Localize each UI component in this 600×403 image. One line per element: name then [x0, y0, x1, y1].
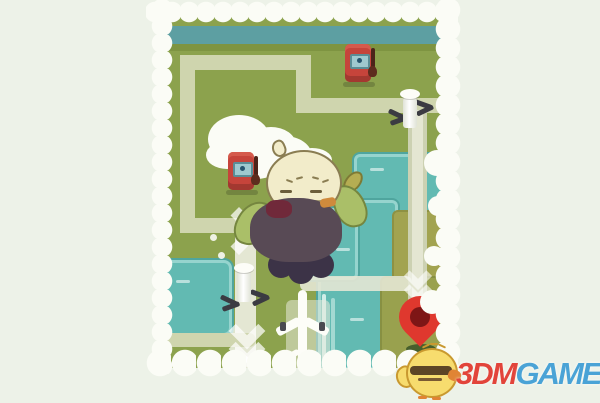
plane-engine	[319, 322, 325, 331]
character-eye	[280, 190, 292, 193]
road-top-horizontal	[180, 55, 311, 70]
pump-shadow	[343, 82, 375, 87]
watermark: 3DMGAME	[396, 340, 600, 402]
wave-mark	[176, 280, 190, 283]
mascot-mouth	[418, 378, 442, 381]
cloud-border-left	[150, 0, 174, 374]
wave-mark	[370, 168, 384, 171]
plane-engine	[280, 322, 286, 331]
mascot-tuft	[438, 343, 446, 348]
cloud-border-puff	[424, 150, 450, 176]
brand-logo: 3DMGAME	[456, 356, 600, 392]
chick-mascot-icon	[396, 342, 462, 402]
game-screenshot: 3DMGAME	[0, 0, 600, 403]
windmill-blade	[222, 301, 241, 312]
windmill-icon	[388, 82, 432, 138]
windmill-tower	[403, 96, 417, 128]
face-mark	[286, 179, 293, 183]
top-river-strip	[160, 26, 444, 44]
chick-character[interactable]	[242, 140, 362, 292]
cloud-border-puff	[420, 290, 444, 314]
cloud-border-puff	[428, 196, 448, 216]
grass-fringe	[160, 44, 444, 51]
mascot-foot	[418, 396, 427, 399]
face-mark	[312, 176, 319, 180]
face-mark	[322, 179, 329, 183]
path-dot	[210, 234, 217, 241]
character-pouch	[266, 200, 292, 218]
world-map[interactable]	[160, 12, 444, 368]
face-mark	[296, 176, 303, 180]
pump-screen	[350, 54, 370, 69]
gas-pump-icon[interactable]	[343, 40, 377, 88]
mascot-sunglasses	[410, 366, 452, 375]
road-left-vertical	[180, 55, 195, 233]
path-dot	[218, 252, 225, 259]
logo-game: GAME	[515, 356, 600, 391]
windmill-cap	[400, 89, 420, 99]
mascot-tuft	[430, 343, 438, 345]
cloud-border-right	[434, 0, 462, 374]
cloud-border-puff	[424, 246, 444, 266]
pump-hose	[371, 48, 375, 68]
character-body	[250, 198, 342, 262]
logo-3dm: 3DM	[456, 356, 515, 391]
character-eye	[310, 190, 322, 193]
mascot-foot	[432, 397, 441, 400]
cloud-border-top	[146, 0, 458, 24]
pump-nozzle	[368, 66, 377, 77]
wave-mark	[350, 318, 364, 321]
